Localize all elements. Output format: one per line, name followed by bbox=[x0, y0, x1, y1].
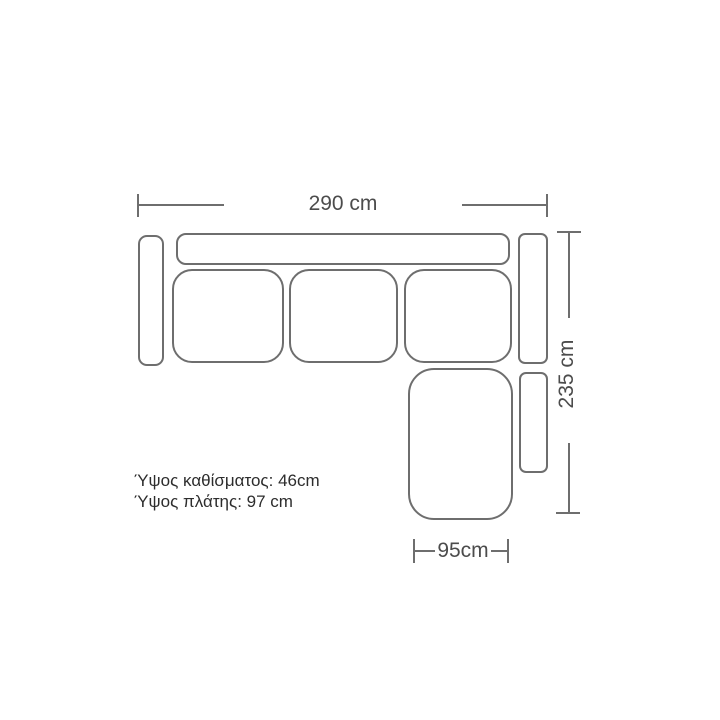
seat-cushion-3-shape bbox=[404, 269, 512, 363]
seat-height-note: Ύψος καθίσματος: 46cm bbox=[134, 470, 320, 491]
height-notes: Ύψος καθίσματος: 46cm Ύψος πλάτης: 97 cm bbox=[134, 470, 320, 512]
backrest-shape bbox=[176, 233, 510, 265]
sofa-dimension-diagram: 290 cm 235 cm 95cm Ύψος καθίσματος: 46cm… bbox=[0, 0, 720, 720]
width-dimension-label: 290 cm bbox=[224, 192, 462, 216]
width-dimension-left-segment bbox=[139, 204, 224, 206]
back-height-note: Ύψος πλάτης: 97 cm bbox=[134, 491, 320, 512]
chaise-width-dimension-right-tick bbox=[507, 539, 509, 563]
seat-cushion-2-shape bbox=[289, 269, 398, 363]
seat-cushion-1-shape bbox=[172, 269, 284, 363]
chaise-width-dimension-right-segment bbox=[491, 550, 508, 552]
chaise-width-dimension-label: 95cm bbox=[435, 539, 491, 563]
left-armrest-shape bbox=[138, 235, 164, 366]
chaise-width-dimension-left-segment bbox=[415, 550, 435, 552]
chaise-armrest-shape bbox=[519, 372, 548, 473]
width-dimension-right-tick bbox=[546, 194, 548, 217]
right-armrest-shape bbox=[518, 233, 548, 364]
depth-dimension-bottom-tick bbox=[556, 512, 580, 514]
depth-dimension-top-segment bbox=[568, 233, 570, 318]
width-dimension-right-segment bbox=[462, 204, 547, 206]
depth-dimension-label: 235 cm bbox=[555, 314, 579, 434]
depth-dimension-bottom-segment bbox=[568, 443, 570, 513]
chaise-shape bbox=[408, 368, 513, 520]
